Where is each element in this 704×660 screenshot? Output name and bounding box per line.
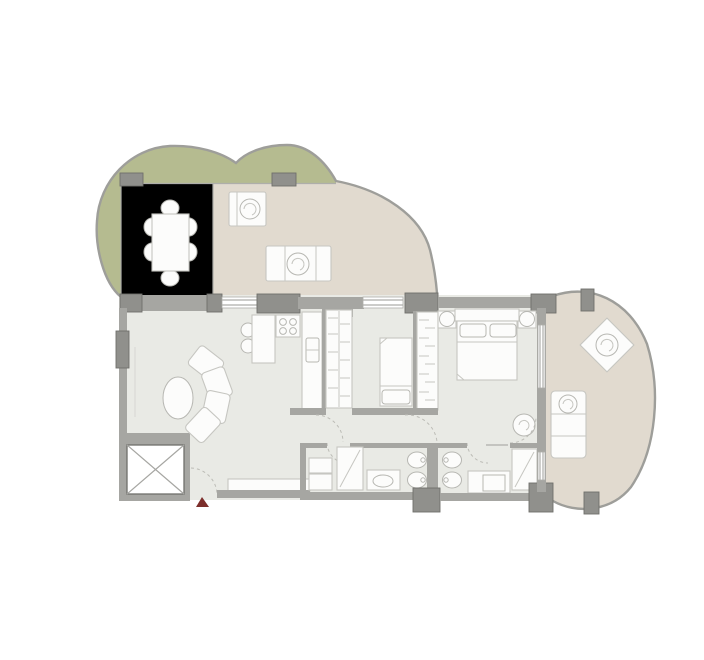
chair <box>161 270 179 286</box>
floor-plan-drawing <box>0 0 704 660</box>
wardrobe2-body <box>417 312 438 410</box>
plant <box>513 414 535 436</box>
wall-bath-north-b <box>350 443 467 448</box>
pillar-bath-south <box>413 488 440 512</box>
wardrobe1-wall <box>322 309 326 409</box>
sink-basin-1 <box>373 475 393 487</box>
wall-master-north <box>438 297 537 308</box>
entry-sideboard <box>228 479 310 491</box>
terrace-armchair <box>229 192 266 226</box>
stove-counter <box>276 315 300 337</box>
wall-master-south <box>440 493 533 501</box>
pillow-right <box>490 324 516 337</box>
wardrobe2-wall <box>413 311 417 411</box>
wall-bedroom-small-south <box>352 408 438 415</box>
nightstand-left-top <box>440 312 455 327</box>
toilet-1-flush <box>421 458 425 462</box>
dining-table <box>152 214 189 271</box>
shaft-wall-n <box>119 433 190 445</box>
wardrobe-2 <box>413 311 438 411</box>
wall-living-south <box>217 490 310 498</box>
pillar-bedrooms-n <box>405 293 438 313</box>
wall-kitchen-south <box>290 408 326 415</box>
nightstand-right-top <box>520 312 535 327</box>
window-master-balcony-2 <box>538 452 545 480</box>
window-bedroom-small <box>363 297 403 308</box>
pillar-dining-nw <box>120 173 143 186</box>
elevator-shaft <box>119 433 190 501</box>
pillar-living-west <box>116 331 129 368</box>
oval-rug <box>163 377 193 419</box>
wall-living-west <box>119 308 127 434</box>
wall-kitchen-north <box>257 294 300 313</box>
pillar-balcony-s <box>584 492 599 514</box>
wall-bath-north-c <box>510 443 537 448</box>
pillar-balcony-n <box>581 289 594 311</box>
pillow-left <box>460 324 486 337</box>
balcony-lounger <box>551 391 586 458</box>
toilet-2-flush <box>444 458 448 462</box>
floor-plan-canvas <box>0 0 704 660</box>
wall-closet-north <box>298 297 364 309</box>
double-bed-headboard <box>455 309 519 321</box>
shaft-wall-w <box>119 433 127 501</box>
wall-bath1-west <box>300 443 306 497</box>
bidet-1-flush <box>421 478 425 482</box>
pillar-dining-se <box>207 294 222 312</box>
vanity-2-basin <box>483 475 505 491</box>
wardrobe-1 <box>322 309 352 409</box>
wall-bath-divider <box>427 447 438 492</box>
terrace-lounger <box>266 246 331 281</box>
single-bed-pillow <box>382 390 410 404</box>
bedroom-small <box>380 338 412 406</box>
window-living-terrace <box>222 297 257 308</box>
bidet-2-flush <box>444 478 448 482</box>
dryer <box>309 474 332 490</box>
window-master-balcony-1 <box>538 325 545 388</box>
pillar-terrace-n <box>272 173 296 186</box>
washer <box>309 458 332 473</box>
